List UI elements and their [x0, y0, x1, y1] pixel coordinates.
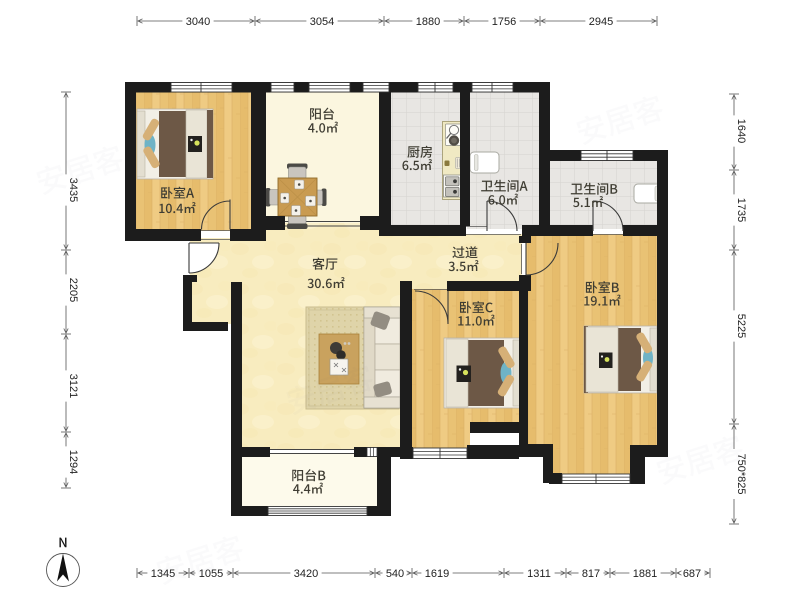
svg-text:1640: 1640 [735, 119, 747, 143]
svg-text:817: 817 [582, 568, 600, 580]
svg-text:687: 687 [683, 568, 701, 580]
svg-text:1619: 1619 [425, 568, 449, 580]
svg-text:3121: 3121 [67, 374, 79, 398]
svg-text:1756: 1756 [492, 16, 516, 28]
svg-text:3040: 3040 [186, 16, 210, 28]
svg-text:2205: 2205 [67, 278, 79, 302]
svg-text:3420: 3420 [294, 568, 318, 580]
svg-text:1881: 1881 [633, 568, 657, 580]
svg-text:3054: 3054 [310, 16, 334, 28]
svg-text:1735: 1735 [735, 198, 747, 222]
svg-text:1311: 1311 [527, 568, 551, 580]
svg-text:2945: 2945 [589, 16, 613, 28]
svg-text:1294: 1294 [67, 450, 79, 474]
svg-text:540: 540 [386, 568, 404, 580]
svg-text:5225: 5225 [735, 314, 747, 338]
svg-text:1880: 1880 [416, 16, 440, 28]
